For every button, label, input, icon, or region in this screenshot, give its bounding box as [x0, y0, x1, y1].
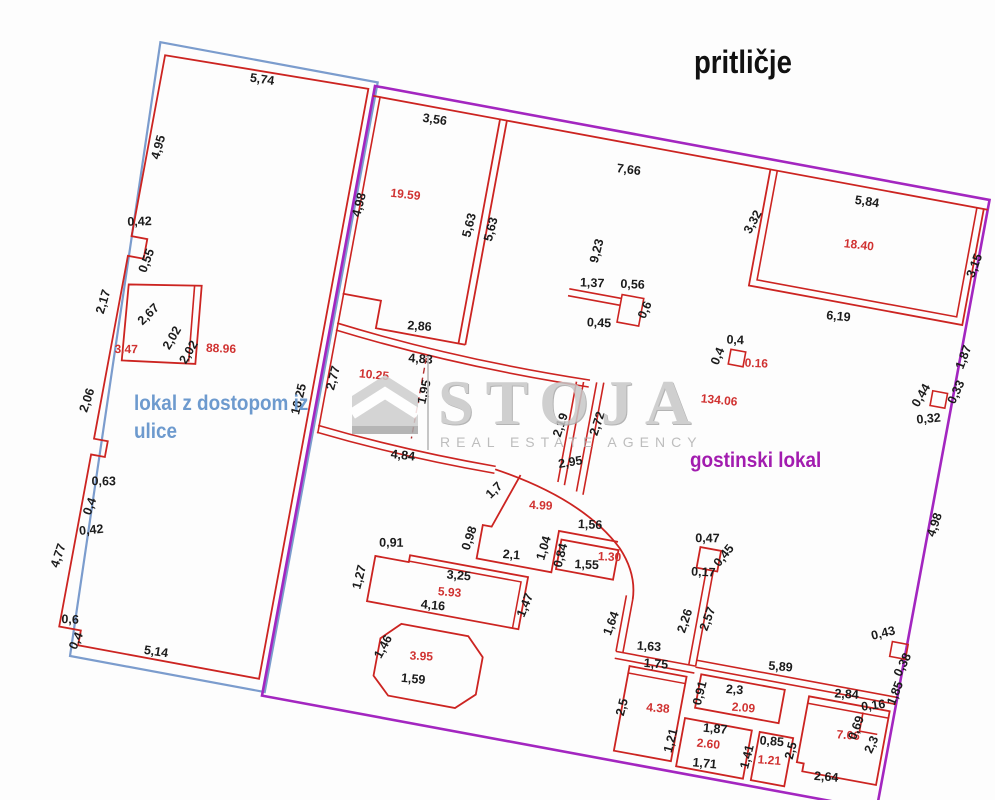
dimension-label: 0,16: [860, 697, 886, 714]
area-label: 10.25: [358, 366, 390, 383]
floor-plan-page: 5,744,950,420,552,172,672,022,023.4788.9…: [0, 0, 995, 800]
left-unit-label-line2: ulice: [134, 418, 308, 446]
dimension-label: 3,25: [446, 568, 471, 584]
area-label: 1.21: [757, 752, 782, 768]
dimension-label: 0,42: [127, 214, 152, 229]
dimension-label: 0,4: [708, 345, 728, 366]
dimension-label: 2,84: [834, 686, 859, 701]
dimension-label: 0,55: [136, 247, 158, 275]
right-unit-label: gostinski lokal: [690, 449, 821, 473]
area-label: 3.95: [409, 649, 433, 664]
dimension-label: 6,19: [826, 308, 852, 324]
dimension-label: 1,21: [661, 727, 681, 754]
dimension-label: 1,56: [578, 517, 603, 532]
dimension-label: 3,56: [422, 111, 448, 128]
dimension-label: 4,77: [48, 542, 69, 570]
left-unit-label: lokal z dostopom iz ulice: [134, 390, 308, 446]
main-top-inner-wall: [373, 96, 988, 210]
dimension-label: 1,46: [371, 633, 395, 661]
dimension-label: 3,15: [964, 252, 986, 280]
dimension-label: 0,6: [61, 612, 79, 627]
dimension-label: 1,87: [702, 721, 728, 737]
dimension-label: 0,17: [691, 564, 716, 579]
dimension-label: 0,32: [916, 410, 942, 426]
dimension-label: 1,47: [514, 591, 536, 619]
area-label: 1.30: [598, 549, 622, 564]
dimension-label: 2,5: [613, 697, 631, 717]
dimension-label: 9,23: [587, 237, 607, 264]
dimension-label: 0,84: [551, 542, 571, 569]
dimension-label: 2,3: [725, 682, 743, 697]
dimension-label: 1,04: [533, 534, 553, 561]
area-label: 4.99: [529, 498, 553, 513]
dimension-label: 0,42: [78, 522, 104, 538]
dimension-label: 0,63: [92, 474, 116, 488]
dimension-label: 2,95: [557, 453, 583, 471]
dimension-label: 1,55: [574, 557, 599, 572]
dimension-label: 0,91: [690, 680, 710, 707]
dimension-label: 5,84: [854, 193, 880, 210]
dimension-label: 0,98: [459, 524, 480, 552]
dimension-label: 2,86: [407, 318, 432, 334]
dimension-label: 2,67: [135, 301, 162, 328]
dimension-label: 0,4: [66, 630, 86, 652]
area-label: 18.40: [843, 236, 875, 253]
floor-title: pritličje: [694, 44, 792, 81]
dimension-label: 1,87: [953, 343, 975, 371]
dimension-label: 1,95: [414, 378, 433, 405]
area-label: 88.96: [206, 341, 237, 356]
dimension-label: 5,63: [459, 212, 479, 239]
area-label: 2.60: [696, 736, 721, 752]
dimension-label: 0,47: [695, 531, 719, 545]
dimension-label: 4,83: [408, 351, 433, 367]
dimension-label: 2,1: [502, 547, 520, 562]
dimension-label: 0,38: [891, 651, 914, 679]
dimension-label: 0,43: [870, 623, 897, 642]
dimension-label: 4,95: [148, 134, 168, 161]
main-building-outline: [262, 86, 990, 800]
dimension-label: 2,02: [160, 324, 184, 352]
niche-wall-1-37: [568, 289, 621, 306]
dimension-label: 1,85: [884, 679, 906, 707]
dimension-label: 1,71: [692, 755, 718, 771]
area-label: 5.93: [437, 584, 462, 600]
dimension-label: 1,63: [636, 639, 661, 654]
room-3-95-walls: [370, 621, 486, 712]
left-unit-red-outline: [56, 51, 368, 678]
left-unit-label-line1: lokal z dostopom iz: [134, 390, 308, 418]
dimension-label: 0,6: [635, 299, 655, 321]
dimension-label: 1,7: [483, 479, 505, 501]
dimension-label: 4,98: [349, 191, 369, 218]
dimension-label: 5,74: [249, 71, 275, 88]
dimension-label: 4,84: [390, 447, 416, 464]
dimension-label: 4,98: [924, 511, 945, 539]
dimension-label: 4,16: [420, 597, 446, 613]
dimension-label: 0,56: [620, 277, 645, 292]
area-label: 4.38: [646, 700, 671, 716]
dimension-label: 5,63: [481, 216, 501, 243]
dimension-label: 2,77: [323, 364, 343, 391]
dimension-label: 0,69: [845, 714, 867, 742]
dimension-label: 2,3: [861, 734, 881, 756]
dimension-label: 7,66: [616, 161, 642, 178]
dimension-label: 2,57: [697, 605, 719, 633]
dimension-label: 1,75: [643, 656, 668, 672]
wall-1-64: [616, 595, 633, 652]
dimension-label: 2,72: [587, 410, 608, 438]
pillar-0-4: [728, 349, 745, 366]
dimension-label: 1,37: [580, 275, 605, 290]
dimension-label: 5,89: [768, 659, 793, 675]
dimension-label: 0,91: [379, 536, 403, 550]
dimension-label: 1,27: [349, 564, 369, 591]
dimension-label: 0,85: [759, 733, 784, 749]
area-label: 3.47: [114, 342, 138, 356]
dimension-label: 2,19: [550, 411, 571, 439]
dimension-label: 1,59: [400, 671, 426, 687]
area-label: 19.59: [390, 186, 422, 203]
dimension-label: 0,33: [945, 378, 968, 406]
area-label: 134.06: [700, 391, 738, 408]
dimension-label: 2,17: [93, 288, 113, 315]
dimension-label: 2,64: [814, 769, 839, 785]
dimension-label: 2,26: [674, 607, 695, 635]
room-3-47-walls: [115, 273, 210, 374]
dimension-label: 0,4: [726, 333, 744, 348]
area-label: 2.09: [731, 700, 756, 716]
area-label: 0.16: [744, 356, 768, 371]
dimension-label: 2,06: [76, 386, 97, 414]
dimension-label: 0,45: [587, 315, 612, 330]
